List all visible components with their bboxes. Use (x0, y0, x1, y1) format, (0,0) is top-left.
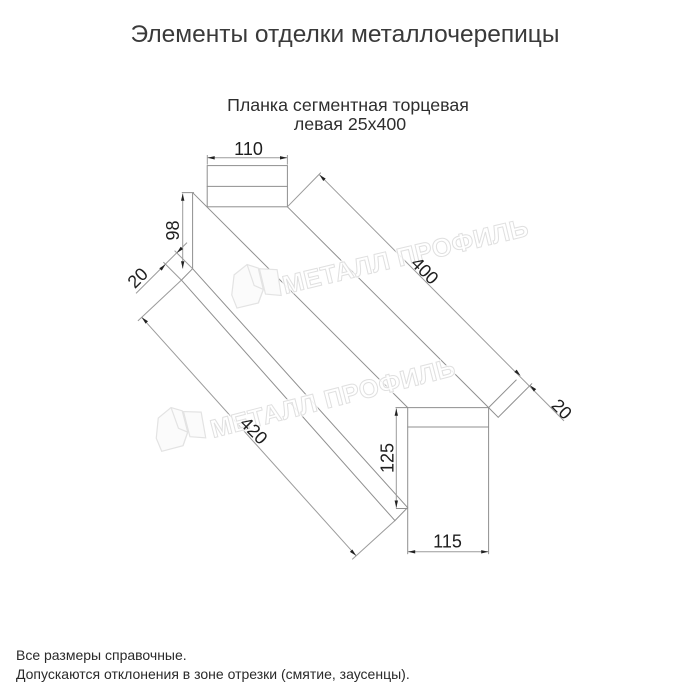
svg-text:115: 115 (433, 532, 462, 552)
svg-text:110: 110 (234, 139, 263, 159)
svg-text:98: 98 (163, 220, 183, 240)
svg-text:Элементы отделки металлочерепи: Элементы отделки металлочерепицы (131, 21, 560, 48)
svg-text:Все размеры справочные.: Все размеры справочные. (16, 647, 187, 663)
svg-text:Планка сегментная торцевая: Планка сегментная торцевая (227, 95, 469, 115)
svg-text:125: 125 (378, 443, 398, 473)
svg-text:Допускаются отклонения в зоне: Допускаются отклонения в зоне отрезки (с… (16, 666, 410, 682)
svg-text:левая 25х400: левая 25х400 (294, 114, 406, 134)
